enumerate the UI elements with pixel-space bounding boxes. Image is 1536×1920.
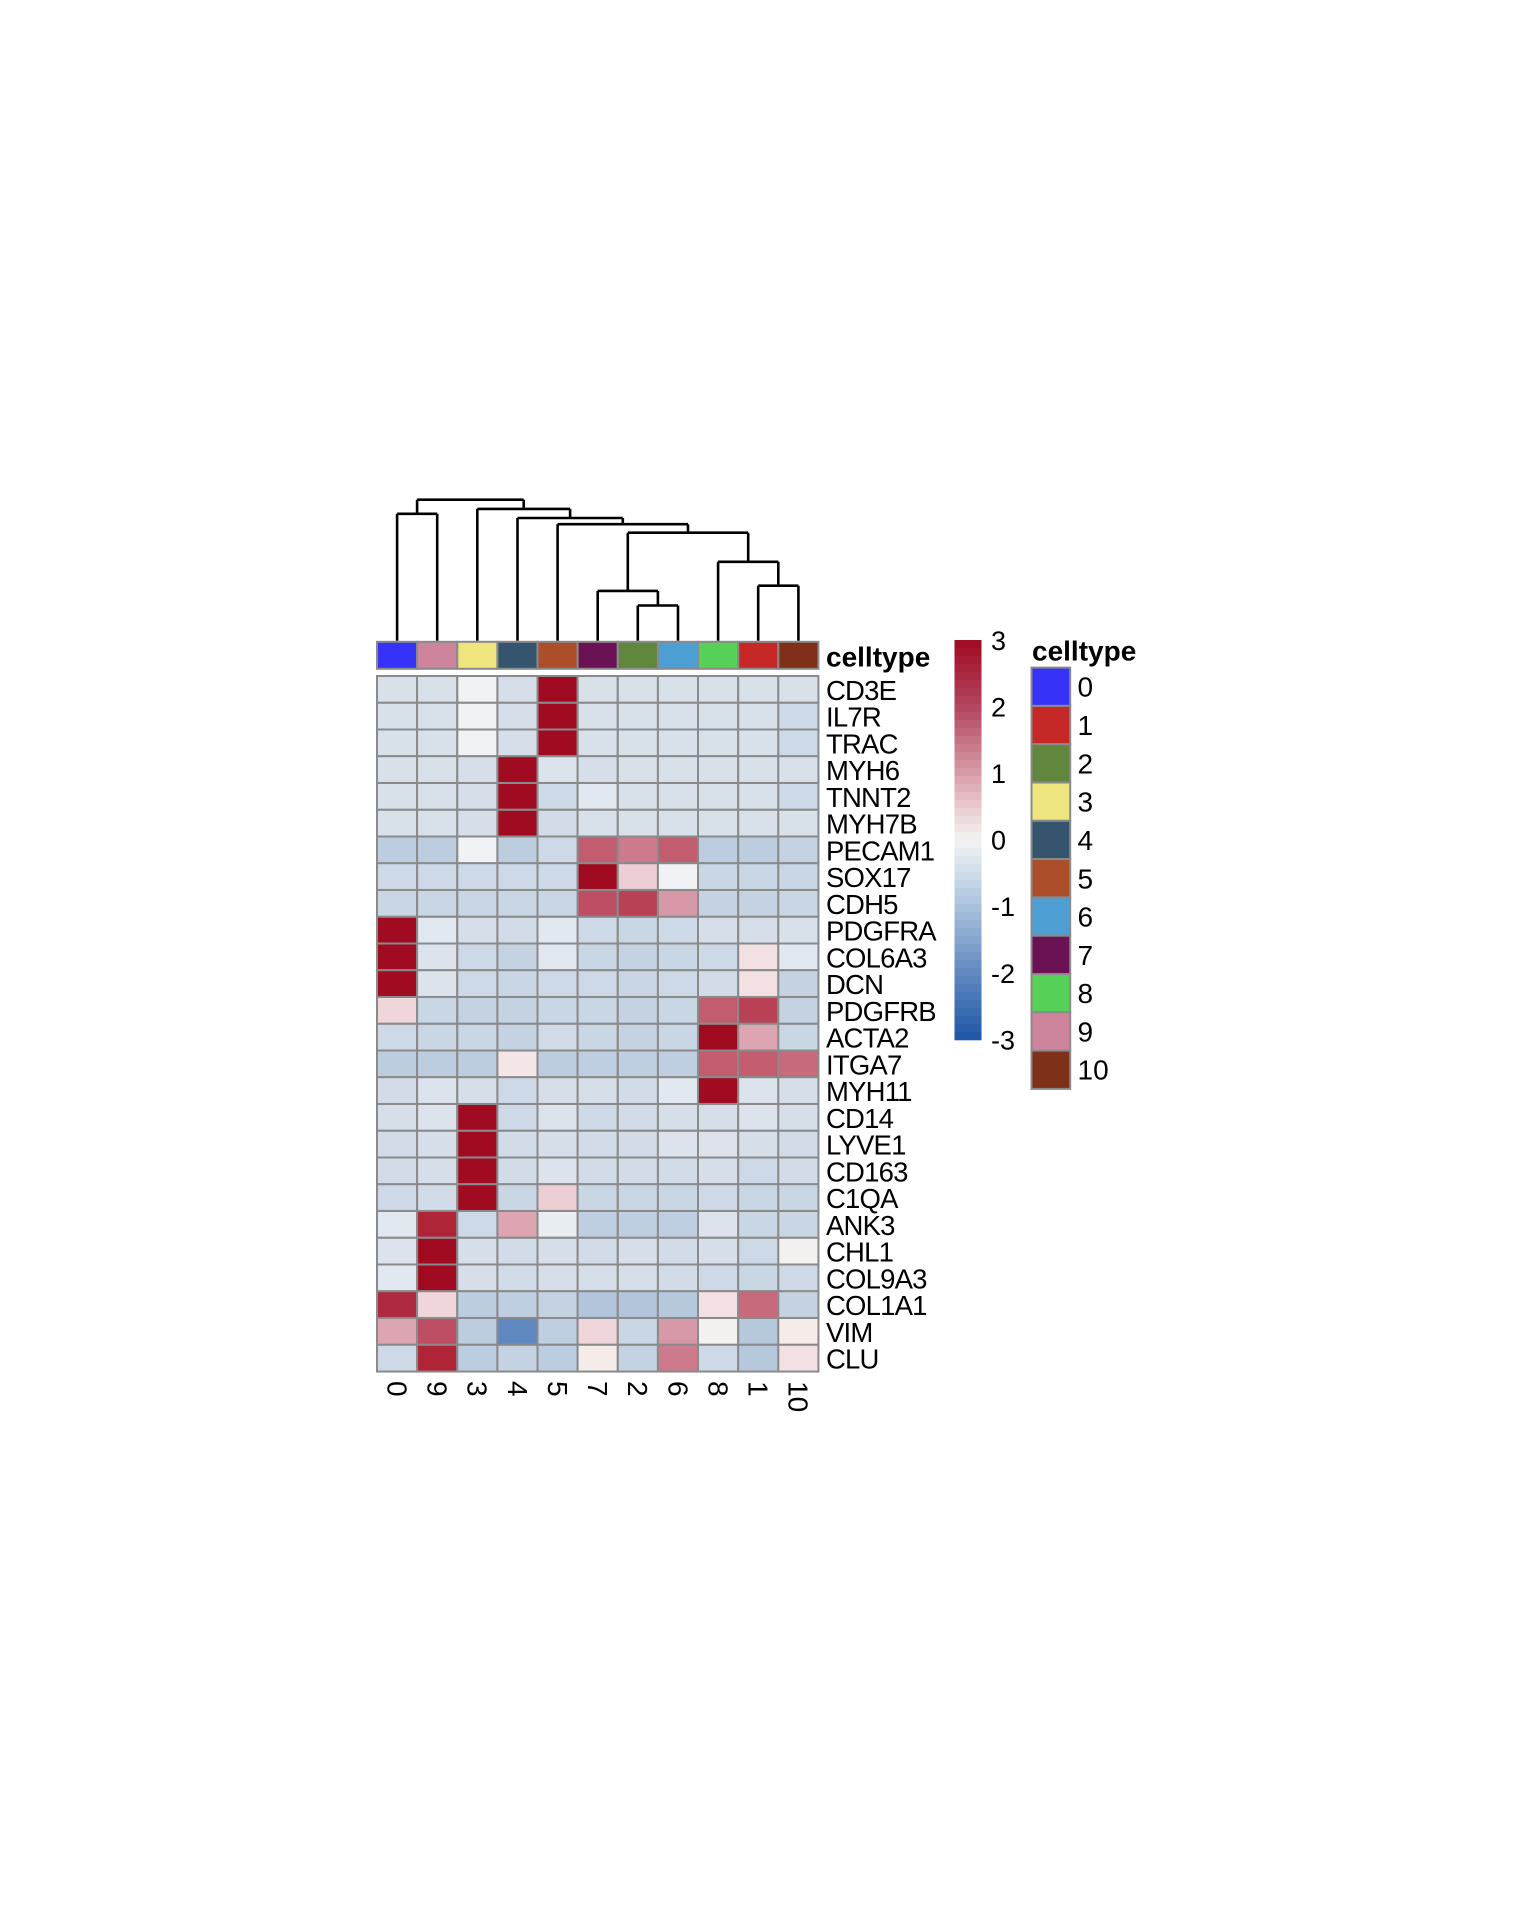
svg-text:-1: -1: [991, 892, 1015, 922]
svg-text:-2: -2: [991, 959, 1015, 989]
svg-text:5: 5: [542, 1381, 573, 1397]
svg-text:5: 5: [1078, 863, 1094, 894]
svg-text:CLU: CLU: [826, 1344, 879, 1375]
svg-text:9: 9: [422, 1381, 453, 1397]
svg-text:1: 1: [743, 1381, 774, 1397]
svg-text:celltype: celltype: [1032, 636, 1136, 667]
svg-text:1: 1: [1078, 710, 1094, 741]
svg-text:9: 9: [1078, 1017, 1094, 1048]
svg-text:-3: -3: [991, 1025, 1015, 1055]
svg-text:6: 6: [1078, 902, 1094, 933]
svg-text:3: 3: [462, 1381, 493, 1397]
svg-text:1: 1: [991, 759, 1006, 789]
svg-text:10: 10: [1078, 1055, 1109, 1086]
svg-text:3: 3: [991, 626, 1006, 656]
svg-text:6: 6: [662, 1381, 693, 1397]
svg-text:0: 0: [1078, 672, 1094, 703]
svg-text:10: 10: [783, 1381, 814, 1412]
svg-text:8: 8: [702, 1381, 733, 1397]
svg-text:3: 3: [1078, 787, 1094, 818]
svg-text:4: 4: [1078, 825, 1094, 856]
svg-text:2: 2: [991, 693, 1006, 723]
svg-text:2: 2: [1078, 748, 1094, 779]
svg-text:7: 7: [582, 1381, 613, 1397]
svg-text:0: 0: [381, 1381, 412, 1397]
svg-text:4: 4: [502, 1381, 533, 1397]
svg-text:8: 8: [1078, 978, 1094, 1009]
svg-text:7: 7: [1078, 940, 1094, 971]
svg-text:celltype: celltype: [826, 642, 930, 673]
svg-text:2: 2: [622, 1381, 653, 1397]
svg-text:0: 0: [991, 826, 1006, 856]
